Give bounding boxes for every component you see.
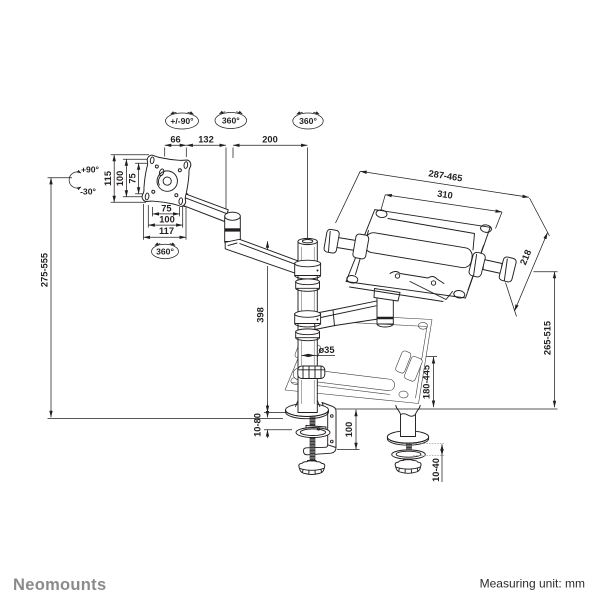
svg-text:75: 75 bbox=[161, 204, 171, 214]
svg-text:10-40: 10-40 bbox=[431, 458, 441, 482]
svg-text:275-555: 275-555 bbox=[39, 253, 49, 287]
svg-text:360°: 360° bbox=[156, 247, 174, 257]
svg-text:310: 310 bbox=[437, 189, 454, 201]
svg-text:200: 200 bbox=[262, 135, 278, 145]
svg-text:132: 132 bbox=[198, 135, 214, 145]
svg-text:Measuring unit: mm: Measuring unit: mm bbox=[480, 577, 585, 591]
svg-text:218: 218 bbox=[518, 248, 533, 266]
svg-text:Neomounts: Neomounts bbox=[13, 576, 106, 594]
svg-text:66: 66 bbox=[170, 135, 180, 145]
svg-text:100: 100 bbox=[115, 171, 125, 187]
svg-text:398: 398 bbox=[256, 307, 266, 323]
svg-text:75: 75 bbox=[127, 173, 137, 183]
svg-text:360°: 360° bbox=[299, 116, 317, 126]
svg-text:265-515: 265-515 bbox=[543, 321, 553, 355]
svg-text:360°: 360° bbox=[222, 116, 240, 126]
svg-text:ø35: ø35 bbox=[319, 345, 335, 355]
svg-text:100: 100 bbox=[159, 215, 175, 225]
svg-text:115: 115 bbox=[103, 171, 113, 186]
svg-text:+/-90°: +/-90° bbox=[170, 116, 194, 126]
svg-text:100: 100 bbox=[344, 422, 354, 438]
svg-text:-30°: -30° bbox=[80, 187, 96, 197]
svg-text:10-80: 10-80 bbox=[253, 413, 263, 437]
svg-text:+90°: +90° bbox=[81, 165, 100, 175]
svg-text:287-465: 287-465 bbox=[428, 168, 463, 183]
svg-text:117: 117 bbox=[159, 226, 174, 236]
